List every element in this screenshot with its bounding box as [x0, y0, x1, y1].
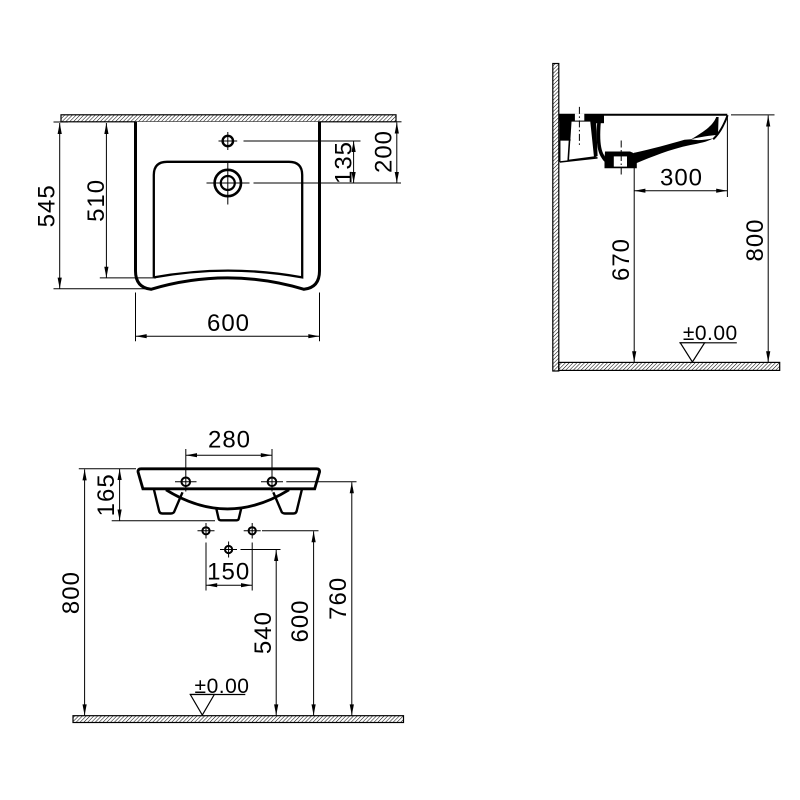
svg-text:600: 600 [287, 599, 314, 642]
svg-text:800: 800 [58, 571, 85, 614]
svg-text:135: 135 [331, 141, 358, 184]
svg-text:300: 300 [660, 165, 703, 192]
svg-text:545: 545 [33, 184, 60, 227]
svg-text:150: 150 [207, 559, 250, 586]
svg-text:540: 540 [250, 611, 277, 654]
svg-text:±0.00: ±0.00 [683, 322, 738, 345]
svg-text:165: 165 [93, 473, 120, 516]
svg-text:200: 200 [370, 130, 397, 173]
svg-text:510: 510 [83, 179, 110, 222]
svg-text:800: 800 [742, 218, 769, 261]
svg-text:760: 760 [325, 577, 352, 620]
svg-text:280: 280 [208, 426, 251, 453]
svg-text:670: 670 [608, 238, 635, 281]
svg-text:600: 600 [207, 310, 250, 337]
